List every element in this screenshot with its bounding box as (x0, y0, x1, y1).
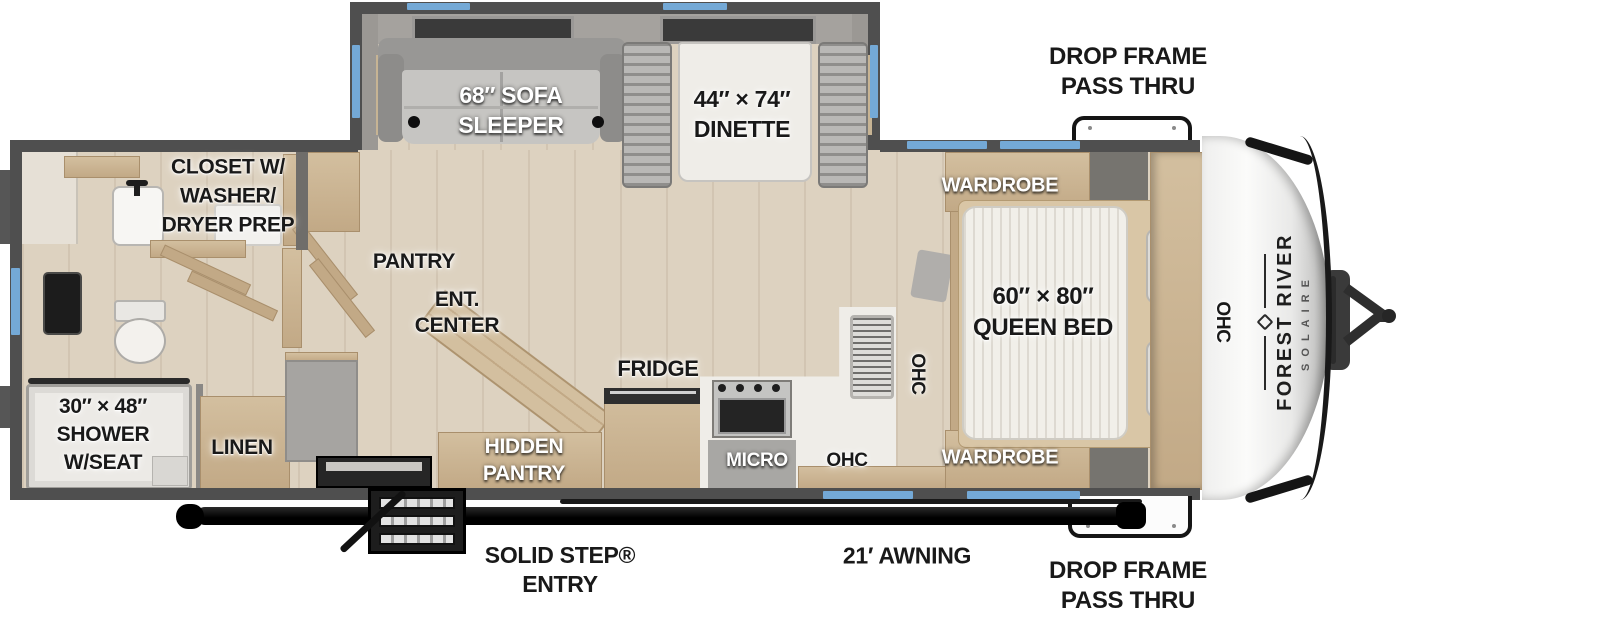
window-accent-bottom-1 (823, 491, 913, 499)
label-ent-center: ENT. CENTER (415, 287, 500, 339)
label-sofa: 68″ SOFA SLEEPER (458, 80, 563, 140)
awning-end-cap-left (176, 504, 204, 529)
toilet-bowl (114, 318, 166, 364)
wall-top-left (10, 140, 358, 152)
dinette-bench-left (622, 42, 672, 188)
dinette-window (660, 16, 816, 44)
shower-seat (152, 456, 188, 486)
window-accent-slide-left (352, 45, 360, 118)
label-drop-frame-bottom: DROP FRAME PASS THRU (1049, 556, 1207, 616)
stove-burner-2 (736, 384, 744, 392)
awning-rail-thin (560, 499, 1142, 504)
label-ohc-kitchen: OHC (826, 450, 867, 472)
step-tread (379, 533, 455, 545)
label-hidden-pantry: HIDDEN PANTRY (483, 433, 565, 487)
entry-steps (368, 488, 466, 554)
bath-partition-wall (296, 152, 308, 250)
label-drop-frame-top: DROP FRAME PASS THRU (1049, 42, 1207, 102)
step-tread (379, 515, 455, 527)
label-ohc-front: OHC (1211, 301, 1233, 342)
label-queen-bed: 60″ × 80″ QUEEN BED (973, 281, 1113, 343)
kitchen-sink (850, 315, 894, 399)
window-accent-slide-right (870, 45, 878, 118)
rear-bumper-tab-top (0, 170, 10, 244)
stove-burner-3 (754, 384, 762, 392)
hitch-tongue (1322, 260, 1398, 380)
front-ohc-cabinet (1150, 152, 1204, 490)
sofa-leg-dot-right (592, 116, 604, 128)
label-micro: MICRO (726, 450, 788, 472)
window-accent-slide-top-1 (407, 3, 470, 10)
bath-faucet-stem (134, 182, 140, 196)
sofa-leg-dot-left (408, 116, 420, 128)
label-fridge: FRIDGE (617, 356, 698, 382)
label-ohc-side: OHC (906, 353, 928, 394)
pantry-cabinet (300, 152, 360, 232)
label-dinette: 44″ × 74″ DINETTE (694, 84, 791, 144)
entry-step-well (316, 456, 432, 488)
label-wardrobe-bottom: WARDROBE (942, 447, 1059, 470)
oven-window (718, 398, 786, 434)
brand-rule-left (1264, 336, 1266, 390)
screw-dot (1172, 126, 1176, 130)
rv-floorplan: FOREST RIVER SOLAIRE CLOSET W/ WASHER/ D… (0, 0, 1600, 621)
closet-shelf-top (64, 156, 140, 178)
brand-make: FOREST RIVER (1274, 233, 1297, 411)
shower-glass-door (28, 378, 190, 384)
label-solid-step: SOLID STEP® ENTRY (485, 541, 635, 599)
dinette-bench-right (818, 42, 868, 188)
brand-model: SOLAIRE (1300, 273, 1312, 371)
entry-step-well-tread (326, 462, 422, 471)
label-pantry: PANTRY (373, 250, 455, 274)
sofa-back (378, 38, 626, 74)
window-accent-bed-top-1 (907, 141, 987, 149)
label-shower: 30″ × 48″ SHOWER W/SEAT (57, 393, 150, 477)
forest-river-emblem-icon (1256, 314, 1273, 331)
window-accent-rear (11, 268, 20, 335)
fridge-handle (610, 391, 696, 394)
entry-wardrobe (285, 360, 358, 462)
window-accent-bottom-2 (967, 491, 1080, 499)
closet-panel-lower (282, 248, 302, 348)
rear-bumper-tab-bottom (0, 386, 10, 428)
window-accent-bed-top-2 (1000, 141, 1080, 149)
awning-end-cap-right (1116, 502, 1146, 529)
window-accent-slide-top-2 (663, 3, 727, 10)
sofa-arm-left (378, 54, 404, 142)
label-linen: LINEN (211, 436, 273, 460)
screw-dot (1172, 524, 1176, 528)
awning-bar (196, 507, 1142, 525)
kitchen-ohc-cabinet (798, 466, 948, 490)
brand-rule-right (1264, 254, 1266, 308)
stove-burner-4 (772, 384, 780, 392)
tv (43, 272, 82, 335)
cap-branding: FOREST RIVER SOLAIRE (1255, 197, 1315, 447)
label-closet: CLOSET W/ WASHER/ DRYER PREP (162, 153, 295, 240)
screw-dot (1088, 126, 1092, 130)
label-wardrobe-top: WARDROBE (942, 175, 1059, 198)
label-awning: 21′ AWNING (843, 543, 971, 570)
brand-emblem-row (1259, 254, 1271, 390)
stove-burner-1 (718, 384, 726, 392)
